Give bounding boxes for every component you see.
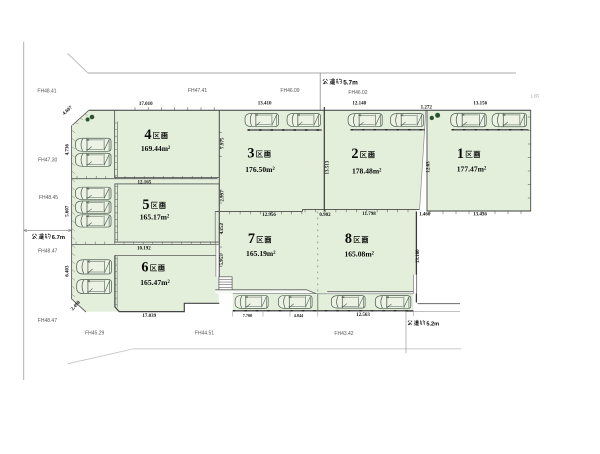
svg-text:10.192: 10.192	[137, 246, 151, 251]
svg-text:169.44m²: 169.44m²	[141, 144, 171, 153]
svg-text:FH48.47: FH48.47	[38, 318, 57, 324]
svg-text:11.798: 11.798	[362, 212, 376, 217]
svg-text:13.410: 13.410	[258, 101, 272, 106]
svg-text:FH48.41: FH48.41	[37, 89, 56, 95]
svg-text:12.563: 12.563	[356, 313, 370, 318]
svg-text:FH47.41: FH47.41	[188, 88, 207, 94]
svg-text:12.63: 12.63	[427, 161, 432, 173]
svg-text:4.844: 4.844	[294, 313, 304, 318]
svg-text:5.7m: 5.7m	[343, 79, 358, 86]
svg-text:5.607: 5.607	[66, 205, 71, 217]
svg-text:5.2m: 5.2m	[426, 321, 439, 327]
svg-text:178.48m²: 178.48m²	[352, 166, 382, 175]
svg-text:165.08m²: 165.08m²	[344, 250, 374, 259]
svg-text:8: 8	[345, 231, 352, 247]
svg-text:FH48.45: FH48.45	[39, 195, 58, 201]
svg-text:FH46.02: FH46.02	[348, 90, 367, 96]
svg-text:2: 2	[351, 146, 358, 162]
svg-text:2.997: 2.997	[221, 190, 226, 202]
svg-text:4: 4	[144, 127, 151, 143]
svg-text:FH48.47: FH48.47	[38, 249, 57, 255]
svg-text:1: 1	[457, 146, 464, 162]
svg-text:4.252: 4.252	[220, 223, 225, 235]
svg-text:6.7m: 6.7m	[52, 235, 65, 241]
svg-text:13.180: 13.180	[416, 249, 421, 263]
svg-text:1.155: 1.155	[531, 95, 540, 99]
svg-text:12.148: 12.148	[352, 102, 366, 107]
svg-text:7: 7	[248, 231, 255, 247]
svg-text:13.156: 13.156	[473, 102, 487, 107]
svg-text:17.039: 17.039	[142, 314, 156, 319]
svg-text:FH45.29: FH45.29	[85, 330, 104, 336]
svg-text:FH46.09: FH46.09	[280, 88, 299, 94]
svg-text:177.47m²: 177.47m²	[457, 164, 487, 173]
svg-text:FH47.30: FH47.30	[38, 158, 57, 164]
svg-text:12.165: 12.165	[138, 181, 152, 186]
svg-text:7.700: 7.700	[243, 313, 252, 318]
svg-text:17.010: 17.010	[139, 102, 153, 107]
svg-text:0.902: 0.902	[319, 213, 331, 218]
svg-text:5: 5	[142, 197, 149, 213]
svg-text:176.50m²: 176.50m²	[245, 165, 275, 174]
svg-text:165.17m²: 165.17m²	[140, 212, 170, 221]
svg-text:1.460: 1.460	[419, 213, 431, 218]
svg-text:FH43.42: FH43.42	[334, 331, 353, 337]
svg-text:165.47m²: 165.47m²	[140, 278, 170, 287]
svg-text:5.953: 5.953	[220, 254, 225, 266]
svg-text:6: 6	[141, 259, 148, 275]
svg-text:165.19m²: 165.19m²	[246, 249, 276, 258]
svg-text:6.403: 6.403	[66, 265, 71, 277]
svg-text:4.736: 4.736	[65, 144, 70, 156]
svg-text:13.436: 13.436	[473, 212, 487, 217]
svg-text:1.272: 1.272	[421, 106, 433, 111]
svg-text:3: 3	[247, 146, 254, 162]
svg-text:12.956: 12.956	[262, 213, 276, 218]
svg-text:13.513: 13.513	[325, 160, 330, 174]
svg-text:7.975: 7.975	[221, 137, 226, 149]
svg-text:FH44.51: FH44.51	[195, 330, 214, 336]
